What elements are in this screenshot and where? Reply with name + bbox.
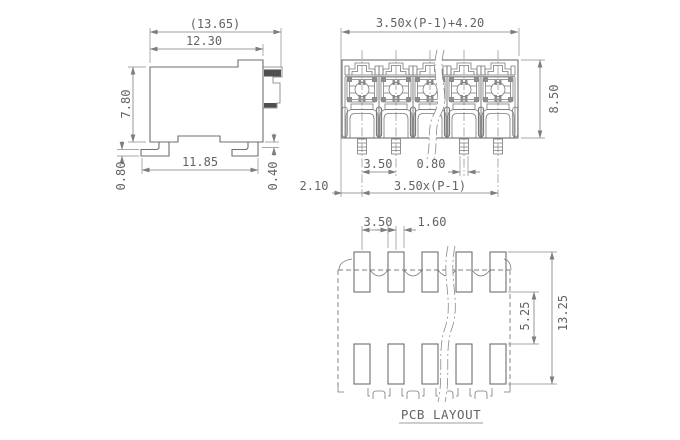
dim-pin-span-label: 3.50x(P-1) (394, 179, 466, 193)
dim-overall-height-label: 13.25 (556, 295, 570, 331)
dim-body-height-label: 7.80 (119, 90, 133, 119)
dim-pin-width-label: 0.80 (417, 157, 446, 171)
dim-row-gap-label: 5.25 (518, 302, 532, 331)
dim-lead-thickness-label: 0.80 (114, 162, 128, 191)
dim-pin-pitch-label: 3.50 (364, 157, 393, 171)
smt-foot-left (141, 142, 169, 156)
front-view-centerlines (362, 50, 498, 197)
dim-overall-width-label: (13.65) (190, 17, 241, 31)
dim-standoff-label: 0.40 (266, 162, 280, 191)
side-view-body (141, 60, 282, 156)
pcb-outline (338, 259, 511, 399)
front-view: 3.50x(P-1)+4.20 8.50 3.50 0.80 2.10 3.50… (300, 16, 561, 197)
pcb-break (438, 246, 455, 402)
dim-pad-width-label: 1.60 (418, 215, 447, 229)
pcb-layout-title: PCB LAYOUT (401, 407, 481, 422)
connector-technical-drawing: (13.65) 12.30 7.80 11.85 0.80 0.40 (0, 0, 680, 440)
pcb-caption: PCB LAYOUT (399, 407, 483, 423)
dim-body-width-label: 12.30 (186, 34, 222, 48)
smt-foot-right (232, 142, 258, 156)
drawing-canvas: (13.65) 12.30 7.80 11.85 0.80 0.40 (0, 0, 680, 440)
dim-foot-span-label: 11.85 (182, 155, 218, 169)
dim-front-height-label: 8.50 (547, 85, 561, 114)
front-view-dimensions: 3.50x(P-1)+4.20 8.50 3.50 0.80 2.10 3.50… (300, 16, 561, 197)
pcb-dimensions: 3.50 1.60 5.25 13.25 (362, 215, 570, 384)
dim-front-overall-width-label: 3.50x(P-1)+4.20 (376, 16, 484, 30)
dim-end-offset-label: 2.10 (300, 179, 329, 193)
front-view-break (426, 50, 445, 162)
pcb-layout: 3.50 1.60 5.25 13.25 PCB LAYOUT (338, 215, 570, 423)
dim-pad-pitch-label: 3.50 (364, 215, 393, 229)
side-view-dimensions: (13.65) 12.30 7.80 11.85 0.80 0.40 (114, 17, 281, 190)
side-view: (13.65) 12.30 7.80 11.85 0.80 0.40 (114, 17, 282, 190)
pcb-pads (354, 252, 506, 384)
